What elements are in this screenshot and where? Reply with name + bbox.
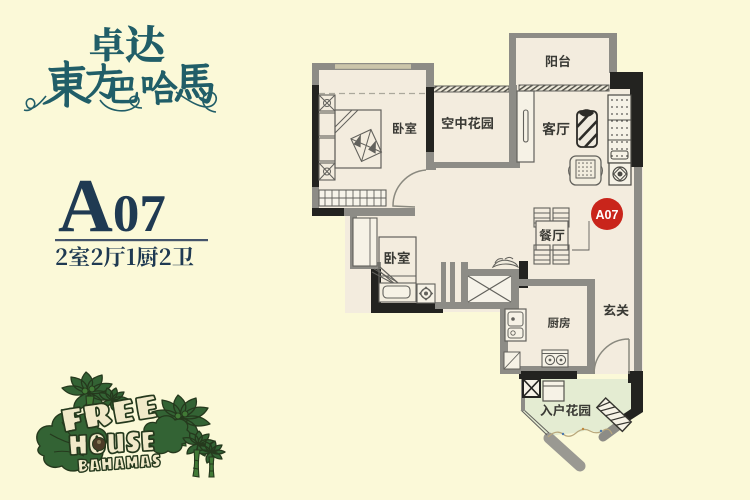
svg-text:A07: A07: [596, 208, 619, 222]
